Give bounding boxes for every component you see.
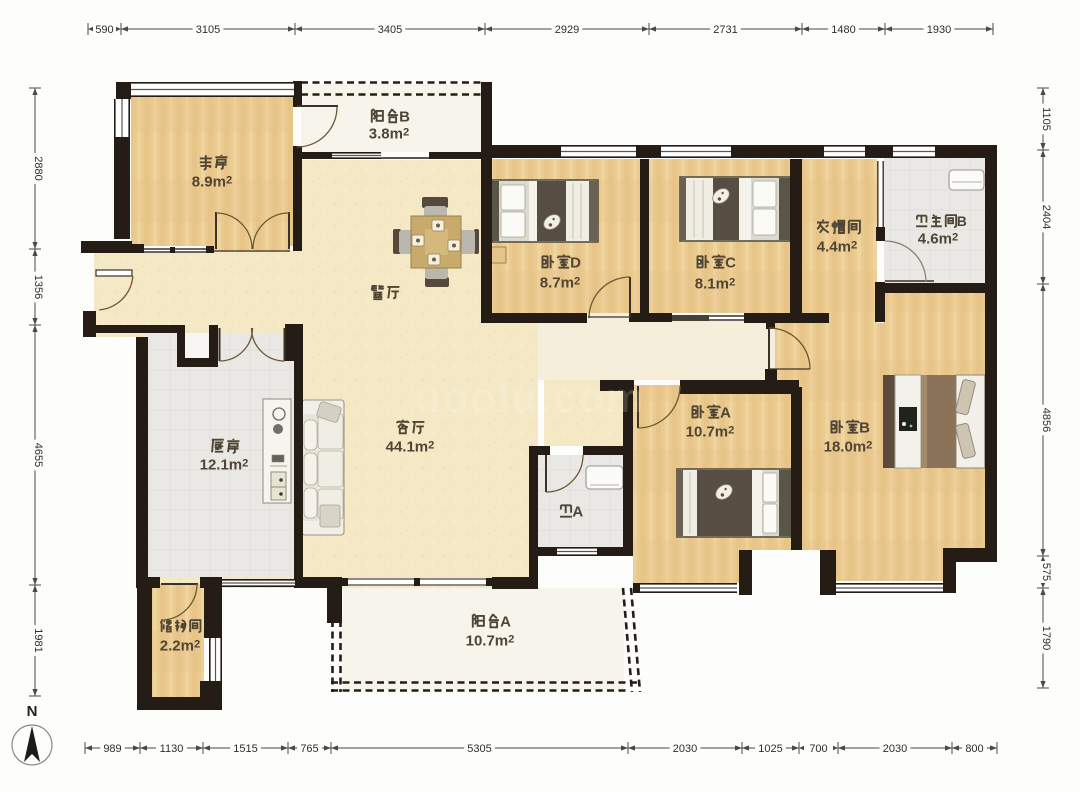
svg-text:4856: 4856	[1040, 408, 1052, 432]
svg-text:1930: 1930	[927, 24, 951, 36]
svg-text:B: B	[859, 419, 870, 436]
svg-text:A: A	[572, 503, 583, 520]
svg-text:3105: 3105	[196, 24, 220, 36]
svg-text:1130: 1130	[160, 743, 184, 755]
svg-text:989: 989	[103, 743, 121, 755]
svg-text:4655: 4655	[32, 443, 44, 467]
svg-text:1025: 1025	[758, 743, 782, 755]
svg-text:765: 765	[300, 743, 318, 755]
svg-text:2030: 2030	[673, 743, 697, 755]
svg-text:10.7m2: 10.7m2	[686, 423, 735, 440]
svg-text:B: B	[399, 108, 410, 125]
svg-text:D: D	[570, 254, 581, 271]
svg-text:N: N	[27, 703, 38, 720]
svg-text:A: A	[500, 613, 511, 630]
svg-text:2404: 2404	[1040, 205, 1052, 229]
svg-text:800: 800	[965, 743, 983, 755]
svg-text:1356: 1356	[32, 275, 44, 299]
svg-text:575: 575	[1040, 563, 1052, 581]
svg-text:3405: 3405	[378, 24, 402, 36]
svg-text:1515: 1515	[233, 743, 257, 755]
svg-text:B: B	[957, 213, 967, 229]
svg-text:12.1m2: 12.1m2	[200, 456, 249, 473]
svg-text:2929: 2929	[555, 24, 579, 36]
svg-text:2880: 2880	[32, 156, 44, 180]
svg-text:uoolu.com: uoolu.com	[415, 374, 645, 421]
svg-text:C: C	[725, 254, 736, 271]
svg-text:5305: 5305	[467, 743, 491, 755]
svg-text:1105: 1105	[1040, 107, 1052, 131]
svg-text:590: 590	[95, 24, 113, 36]
svg-text:2731: 2731	[713, 24, 737, 36]
svg-text:1981: 1981	[32, 628, 44, 652]
svg-text:1480: 1480	[831, 24, 855, 36]
svg-text:A: A	[720, 404, 731, 421]
svg-text:1790: 1790	[1040, 626, 1052, 650]
svg-text:10.7m2: 10.7m2	[466, 632, 515, 649]
svg-text:700: 700	[809, 743, 827, 755]
svg-text:18.0m2: 18.0m2	[824, 438, 873, 455]
svg-text:2030: 2030	[883, 743, 907, 755]
svg-text:44.1m2: 44.1m2	[386, 438, 435, 455]
